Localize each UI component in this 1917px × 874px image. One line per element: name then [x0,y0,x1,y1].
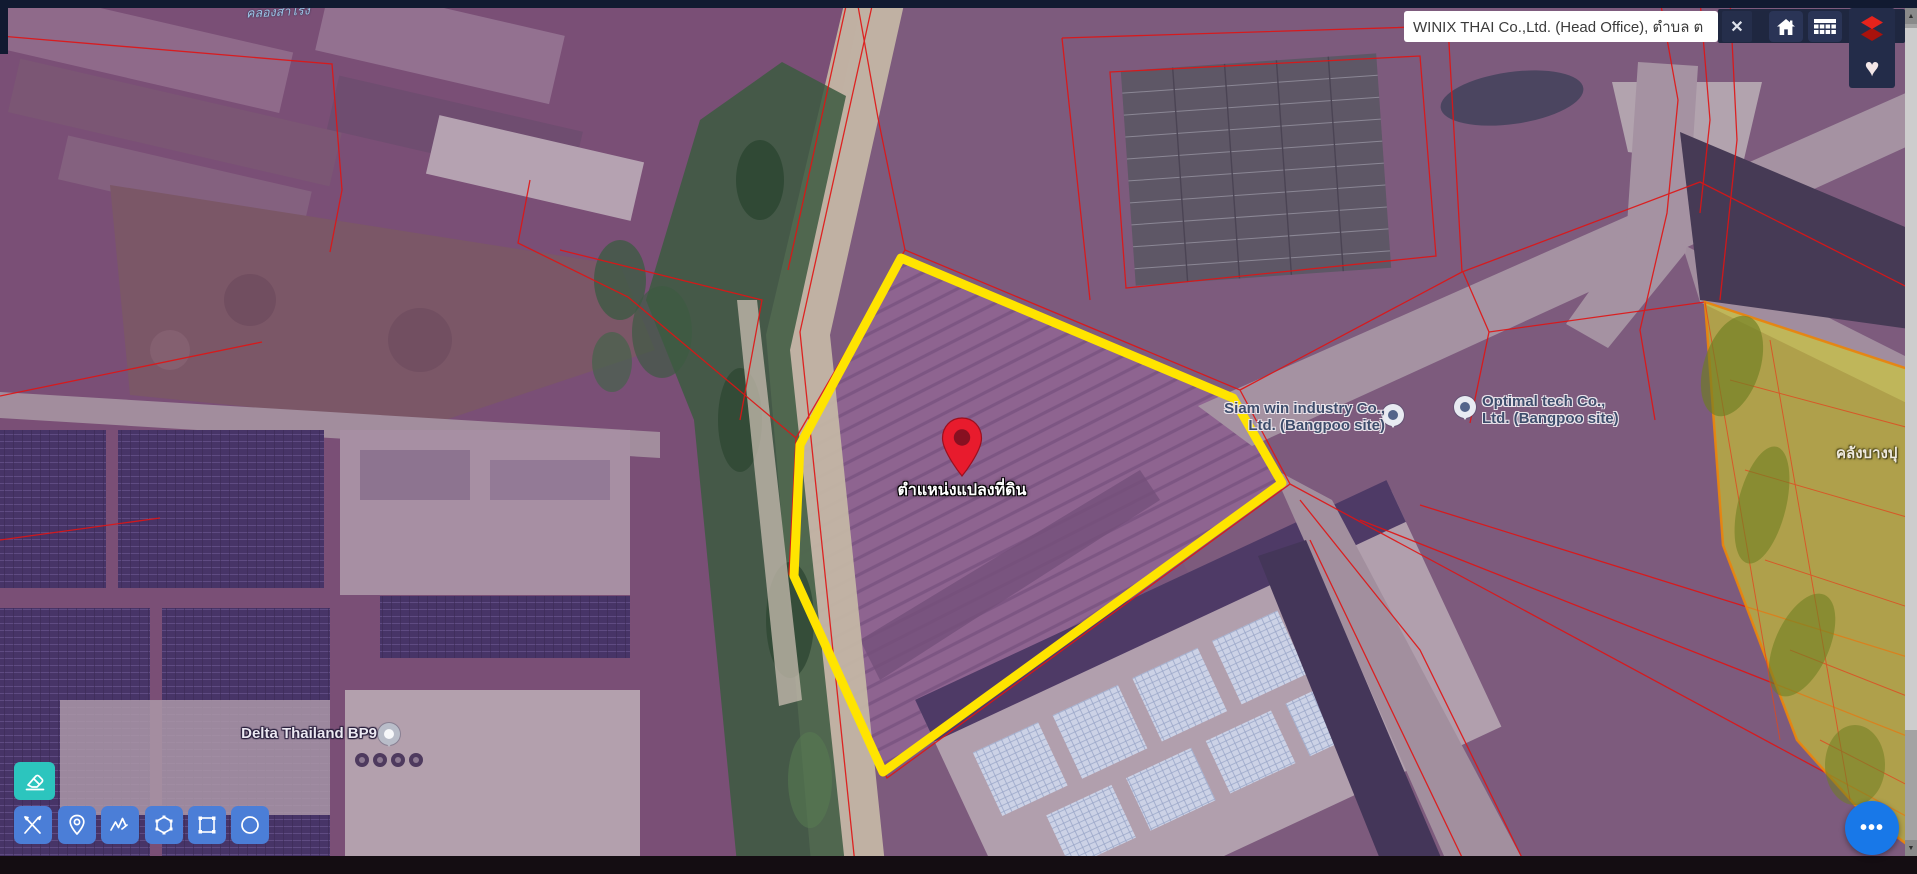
left-border-strip [0,8,8,54]
edit-draw-icon [21,813,45,837]
map-application: คลองสำโรง Siam win industry Co., Ltd. (B… [0,0,1917,874]
ellipsis-icon: ••• [1860,817,1884,840]
marker-tool-button[interactable] [58,806,96,844]
circle-tool-icon [238,813,262,837]
grid-icon [1814,19,1836,35]
polyline-tool-button[interactable] [101,806,139,844]
clear-search-button[interactable]: ✕ [1722,11,1752,42]
poi-marker-delta [378,723,400,745]
rectangle-tool-button[interactable] [188,806,226,844]
circle-tool-button[interactable] [231,806,269,844]
page-scrollbar[interactable]: ▲ ▼ [1905,8,1917,856]
search-input[interactable] [1404,11,1718,42]
marker-tool-icon [65,813,89,837]
polygon-tool-icon [152,813,176,837]
layers-button[interactable] [1849,8,1895,48]
grid-button[interactable] [1808,11,1842,42]
layers-icon [1859,15,1885,42]
scrollbar-up-arrow[interactable]: ▲ [1905,8,1917,24]
eraser-icon [23,769,47,793]
scrollbar-down-arrow[interactable]: ▼ [1905,840,1917,856]
right-side-panel: ♥ [1849,8,1895,88]
map-canvas[interactable] [0,0,1917,874]
top-border-bar [0,0,1917,8]
poi-marker-siam-win [1382,404,1404,426]
industrial-block [1121,53,1391,285]
heart-icon: ♥ [1865,56,1880,81]
more-options-fab[interactable]: ••• [1845,801,1899,855]
scrollbar-thumb[interactable] [1905,28,1917,730]
favorite-button[interactable]: ♥ [1849,48,1895,88]
polyline-tool-icon [108,813,132,837]
solar-arrays [0,430,640,860]
rectangle-tool-icon [195,813,219,837]
home-button[interactable] [1769,11,1803,42]
polygon-tool-button[interactable] [145,806,183,844]
poi-marker-optimal-tech [1454,396,1476,418]
home-icon [1776,18,1796,36]
bottom-border-bar [0,856,1917,874]
edit-draw-tool-button[interactable] [14,806,52,844]
eraser-tool-button[interactable] [14,762,55,800]
